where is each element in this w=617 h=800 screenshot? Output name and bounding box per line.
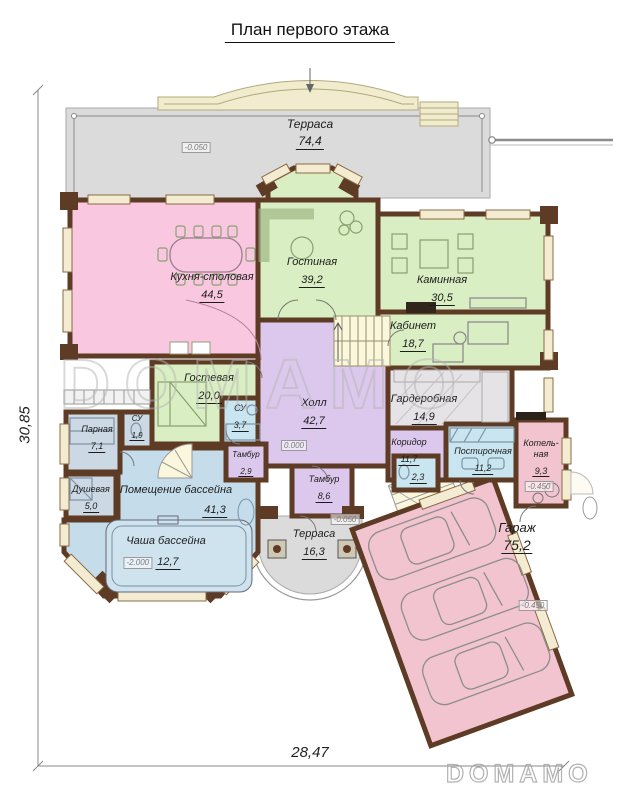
room-label-boiler: Котель- ная 9,3 <box>523 438 558 479</box>
elevation-terrace-bottom: -0.050 <box>331 514 360 525</box>
window <box>544 378 553 412</box>
room-label-steam: Парная 7,1 <box>81 424 112 454</box>
room-label-pool-room-area: 41,3 <box>202 499 227 518</box>
elevation-boiler: -0.450 <box>525 481 554 492</box>
boiler-porch <box>571 472 597 519</box>
room-label-office: Кабинет 18,7 <box>390 320 436 352</box>
window <box>544 330 553 360</box>
porch-steps-left <box>64 390 150 404</box>
room-label-kitchen: Кухня-столовая 44,5 <box>170 271 253 303</box>
window <box>63 290 72 332</box>
room-label-pool-basin-area: -2.00012,7 <box>123 551 180 570</box>
room-label-tambour-entry: Тамбур 8,6 <box>309 474 340 504</box>
elevation-garage: -0.450 <box>519 600 548 611</box>
window <box>166 195 214 204</box>
window <box>562 470 571 500</box>
arch <box>158 68 418 110</box>
room-label-su-small: 2,3 <box>410 466 427 485</box>
window <box>486 210 530 219</box>
terrace-steps <box>420 102 458 126</box>
window <box>60 478 69 510</box>
dimension-bottom: 28,47 <box>291 744 329 761</box>
window <box>562 438 571 464</box>
room-label-shower: Душевая 5,0 <box>72 484 110 514</box>
dimension-left: 30,85 <box>17 406 34 444</box>
hall-staircase <box>334 316 390 366</box>
window <box>63 228 72 272</box>
room-label-su-sauna: СУ 1,9 <box>129 414 144 443</box>
room-label-su-guest: СУ 3,7 <box>232 403 249 433</box>
window <box>60 524 69 546</box>
elevation-pool-basin: -2.000 <box>123 557 152 569</box>
window <box>88 195 130 204</box>
room-label-hall: Холл 42,7 <box>301 397 326 429</box>
fence-line <box>489 137 613 145</box>
room-label-corridor: Коридор 11,7 <box>391 437 426 467</box>
room-label-fireplace: Каминная 30,5 <box>417 274 467 306</box>
room-label-pool-basin: Чаша бассейна <box>126 535 206 548</box>
page-title: План первого этажа <box>225 20 395 43</box>
room-label-laundry: Постирочная 11,2 <box>454 446 512 476</box>
room-label-wardrobe: Гардеробная 14,9 <box>391 393 458 425</box>
window <box>544 236 553 280</box>
room-label-guest: Гостевая 20,0 <box>184 372 234 404</box>
room-label-living: Гостиная 39,2 <box>287 256 337 288</box>
elevation-terrace-top: -0.050 <box>182 142 211 153</box>
window <box>60 424 69 464</box>
window <box>420 210 464 219</box>
elevation-hall: 0.000 <box>281 440 307 451</box>
room-label-terrace-top: Терраса 74,4 <box>287 117 333 151</box>
room-label-pool-room: Помещение бассейна <box>120 484 232 497</box>
room-label-garage: Гараж 75,2 <box>498 520 535 555</box>
room-label-tambour-pool: Тамбур 2,9 <box>232 450 259 479</box>
floor-plan-canvas: План первого этажа <box>0 0 617 800</box>
room-label-terrace-bottom: Терраса 16,3 <box>293 528 335 560</box>
window <box>296 164 330 173</box>
